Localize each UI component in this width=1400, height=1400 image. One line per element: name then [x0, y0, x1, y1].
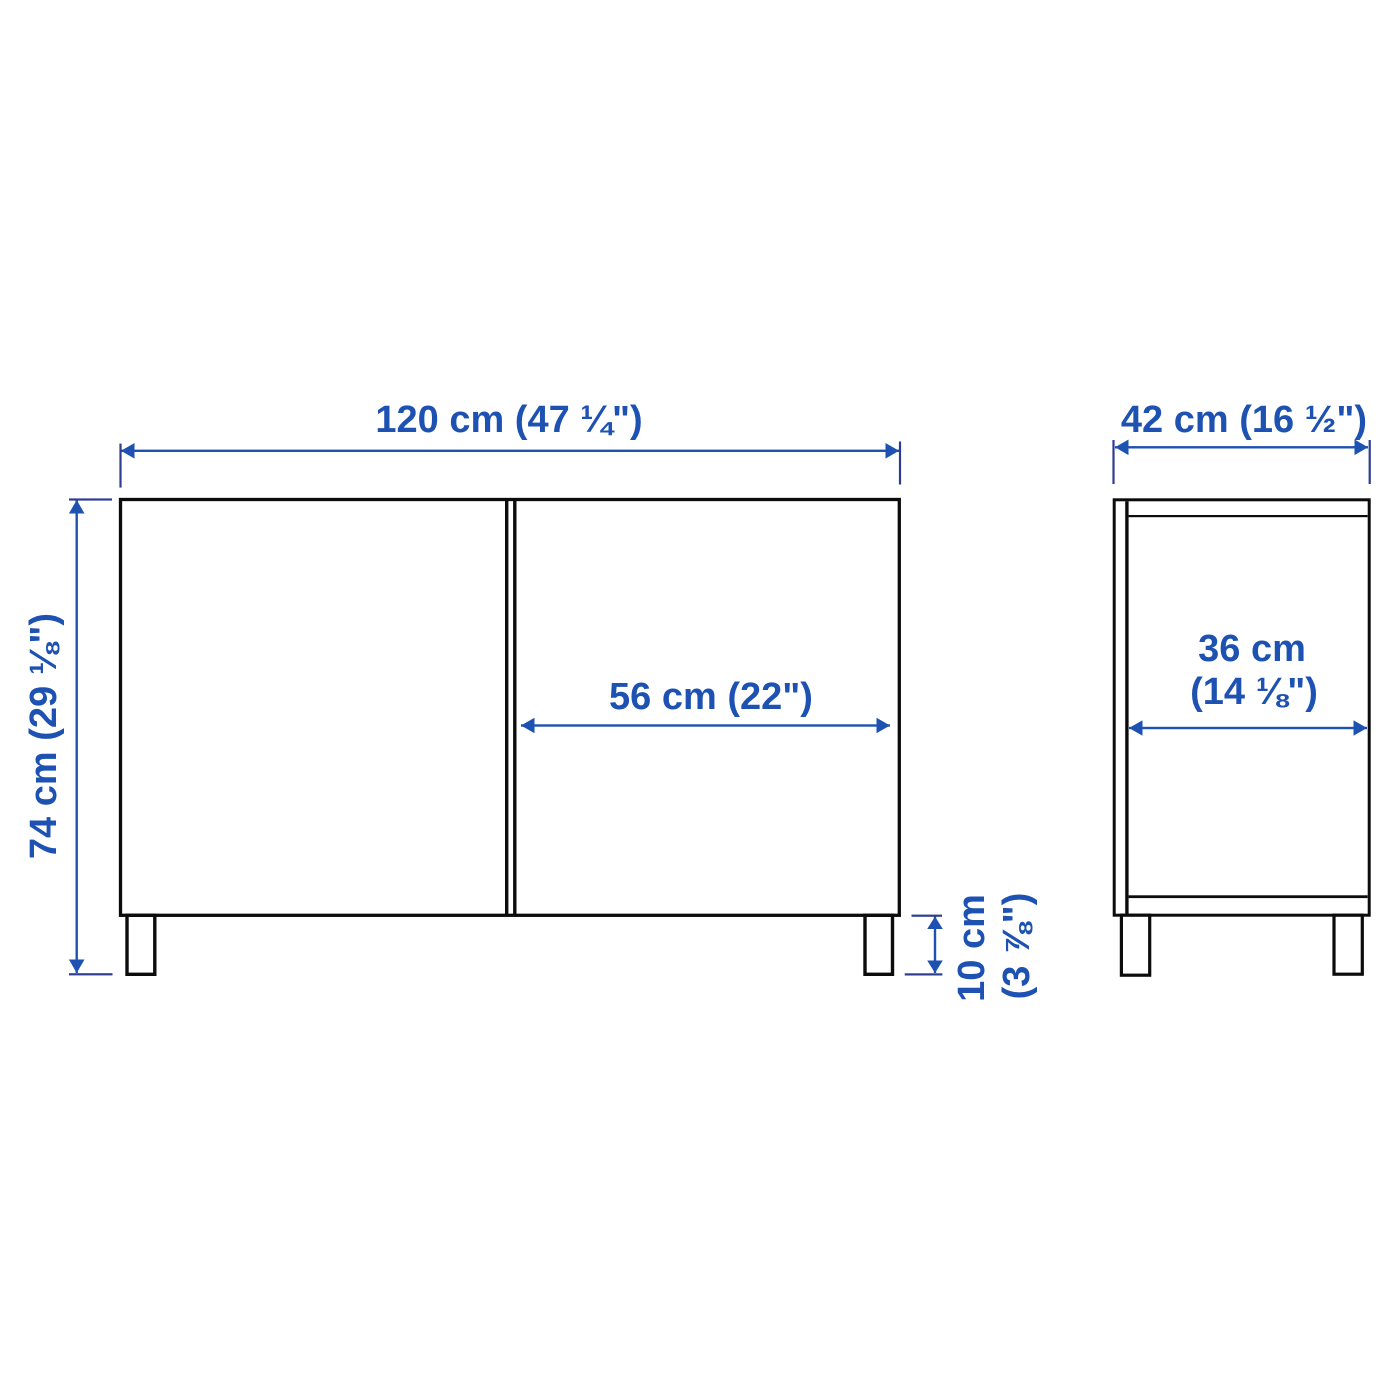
svg-text:10 cm: 10 cm	[951, 894, 993, 1002]
svg-text:36 cm: 36 cm	[1198, 628, 1306, 670]
svg-text:(3 ⅞"): (3 ⅞")	[996, 893, 1038, 1000]
svg-text:42 cm (16 ½"): 42 cm (16 ½")	[1121, 399, 1367, 441]
svg-text:74 cm (29 ⅛"): 74 cm (29 ⅛")	[23, 613, 65, 859]
svg-text:56 cm (22"): 56 cm (22")	[609, 676, 813, 718]
svg-text:(14 ⅛"): (14 ⅛")	[1190, 671, 1318, 713]
svg-text:120 cm (47 ¼"): 120 cm (47 ¼")	[375, 399, 642, 441]
